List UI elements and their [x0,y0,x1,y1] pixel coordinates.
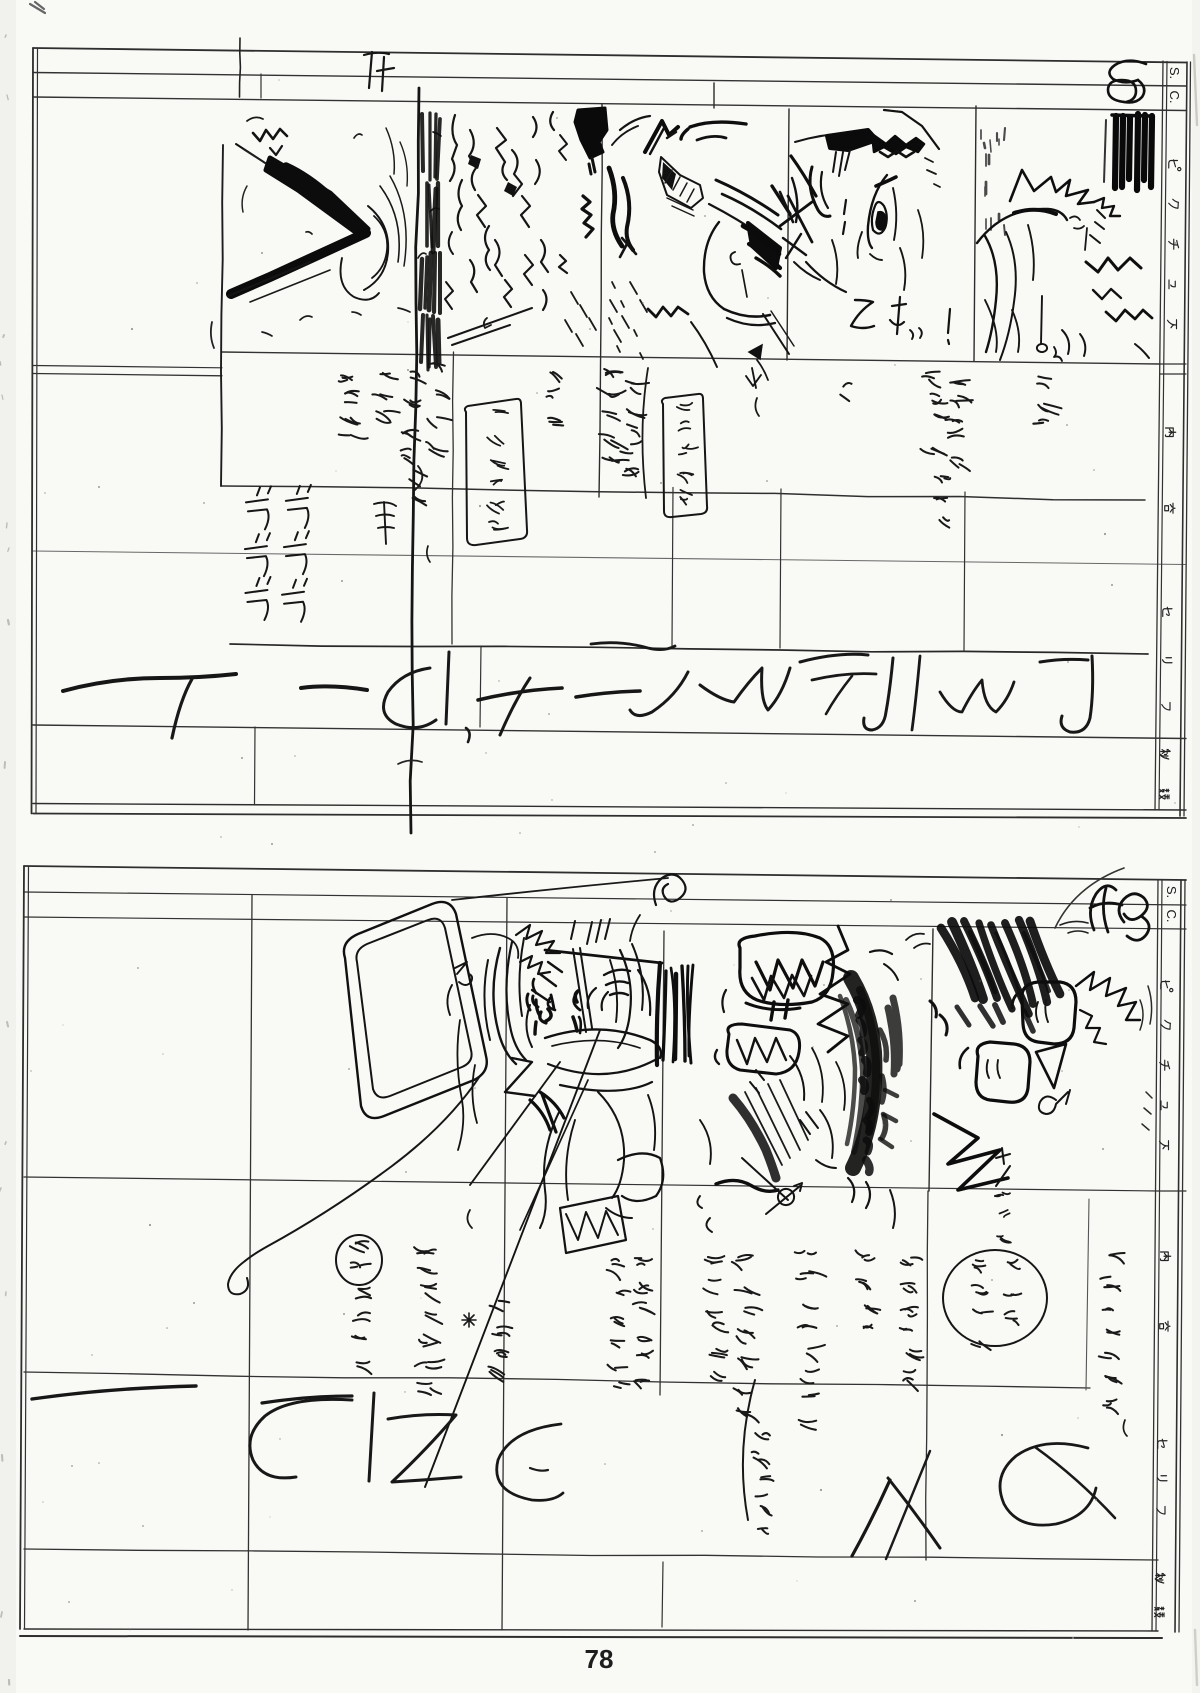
svg-text:C.: C. [1164,910,1179,923]
svg-text:78: 78 [585,1644,614,1674]
svg-text:S.: S. [1164,886,1179,898]
svg-text:S.: S. [1167,67,1182,79]
svg-text:C.: C. [1167,91,1182,104]
